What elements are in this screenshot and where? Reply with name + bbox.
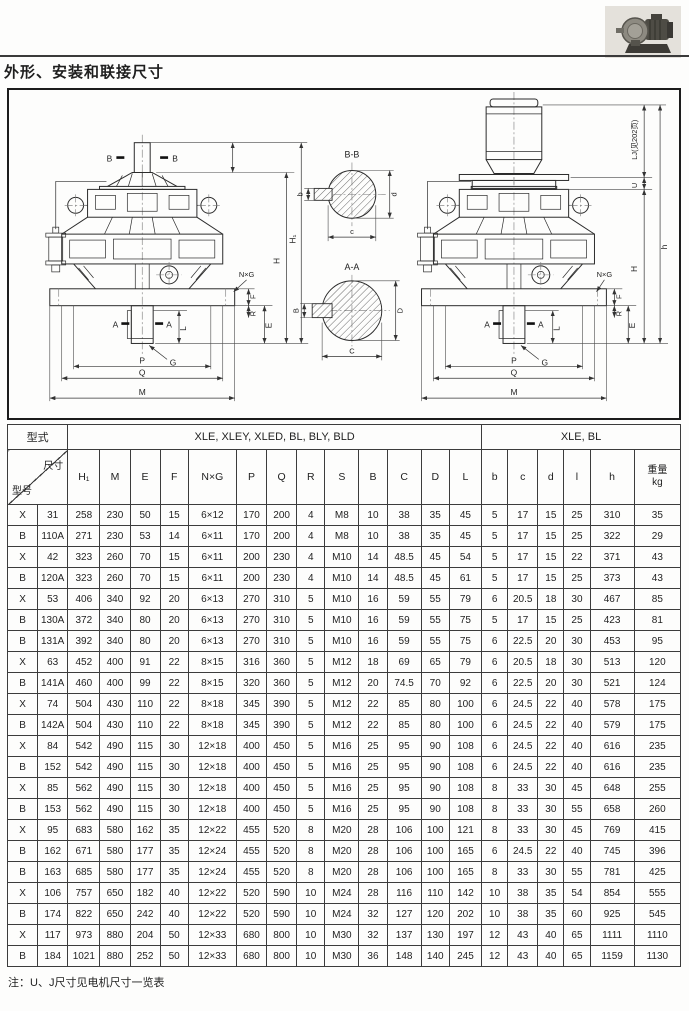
table-cell: 59: [387, 631, 421, 652]
table-header-row: 尺寸 型号 H₁ M E F N×G P Q R S B C D L b c d…: [8, 450, 681, 505]
table-cell: M20: [325, 841, 359, 862]
table-cell: X: [8, 589, 38, 610]
table-cell: 6×11: [188, 568, 236, 589]
table-cell: 235: [634, 757, 680, 778]
table-cell: 110A: [38, 526, 68, 547]
table-cell: 24.5: [508, 757, 538, 778]
table-cell: 4: [297, 505, 325, 526]
table-cell: 520: [236, 883, 266, 904]
table-cell: 6: [482, 631, 508, 652]
table-cell: 14: [359, 547, 387, 568]
table-cell: 74: [38, 694, 68, 715]
table-cell: 22: [538, 841, 564, 862]
table-cell: X: [8, 652, 38, 673]
table-cell: 769: [590, 820, 634, 841]
table-cell: 12×24: [188, 841, 236, 862]
table-cell: 95: [387, 757, 421, 778]
table-cell: 8×15: [188, 673, 236, 694]
table-cell: 95: [387, 778, 421, 799]
table-cell: B: [8, 715, 38, 736]
weight-unit: kg: [635, 477, 680, 490]
table-cell: M10: [325, 589, 359, 610]
product-photo-gearmotor: [605, 6, 681, 58]
table-cell: 650: [100, 904, 130, 925]
table-cell: 504: [68, 715, 100, 736]
table-cell: 79: [449, 589, 481, 610]
table-cell: 15: [538, 568, 564, 589]
table-cell: 8×18: [188, 715, 236, 736]
table-cell: 230: [267, 547, 297, 568]
table-cell: 24.5: [508, 715, 538, 736]
table-cell: 6×13: [188, 610, 236, 631]
table-cell: 400: [100, 673, 130, 694]
table-cell: 467: [590, 589, 634, 610]
table-cell: 165: [449, 841, 481, 862]
col-d: d: [538, 450, 564, 505]
table-cell: 204: [130, 925, 160, 946]
table-cell: 22: [538, 715, 564, 736]
table-cell: 6×11: [188, 547, 236, 568]
table-cell: 450: [267, 799, 297, 820]
table-cell: 50: [160, 946, 188, 967]
table-cell: 197: [449, 925, 481, 946]
table-cell: 310: [267, 631, 297, 652]
table-cell: 562: [68, 799, 100, 820]
table-group-row: 型式 XLE, XLEY, XLED, BL, BLY, BLD XLE, BL: [8, 425, 681, 450]
table-cell: 5: [482, 505, 508, 526]
table-cell: 15: [160, 547, 188, 568]
table-cell: 658: [590, 799, 634, 820]
table-cell: 20: [160, 631, 188, 652]
table-cell: 170: [236, 526, 266, 547]
dim-U: U: [630, 183, 639, 188]
table-cell: 32: [359, 904, 387, 925]
table-cell: 53: [38, 589, 68, 610]
table-cell: 55: [564, 862, 590, 883]
table-cell: 14: [160, 526, 188, 547]
table-row: B130A37234080206×132703105M1016595575517…: [8, 610, 681, 631]
table-cell: 120: [634, 652, 680, 673]
table-cell: 30: [538, 820, 564, 841]
table-cell: 854: [590, 883, 634, 904]
table-cell: 45: [421, 568, 449, 589]
type-header: 型式: [8, 425, 68, 450]
table-cell: 30: [160, 799, 188, 820]
table-cell: 106: [387, 862, 421, 883]
table-cell: 45: [564, 820, 590, 841]
table-cell: 162: [38, 841, 68, 862]
table-cell: 616: [590, 757, 634, 778]
footnote: 注：U、J尺寸见电机尺寸一览表: [8, 974, 164, 990]
table-cell: 22: [564, 547, 590, 568]
group-header-xle-series: XLE, XLEY, XLED, BL, BLY, BLD: [68, 425, 482, 450]
table-cell: 371: [590, 547, 634, 568]
table-cell: 200: [236, 547, 266, 568]
table-cell: 108: [449, 799, 481, 820]
table-cell: 10: [297, 925, 325, 946]
table-cell: 140: [421, 946, 449, 967]
table-cell: 55: [421, 631, 449, 652]
table-cell: 1021: [68, 946, 100, 967]
table-cell: 137: [387, 925, 421, 946]
table-cell: 22: [160, 715, 188, 736]
table-cell: 90: [421, 778, 449, 799]
table-cell: 12×33: [188, 946, 236, 967]
table-cell: 450: [267, 736, 297, 757]
table-cell: 108: [449, 736, 481, 757]
table-cell: 258: [68, 505, 100, 526]
table-cell: 4: [297, 526, 325, 547]
table-cell: 42: [38, 547, 68, 568]
table-cell: 33: [508, 778, 538, 799]
table-cell: 230: [100, 505, 130, 526]
table-cell: 520: [267, 820, 297, 841]
table-cell: 5: [297, 631, 325, 652]
table-cell: X: [8, 694, 38, 715]
table-cell: 520: [236, 904, 266, 925]
table-cell: 35: [538, 904, 564, 925]
col-R: R: [297, 450, 325, 505]
section-bb-title: B-B: [344, 150, 359, 160]
table-cell: 100: [449, 694, 481, 715]
catalog-page: 外形、安装和联接尺寸: [0, 0, 689, 1011]
table-cell: 90: [421, 757, 449, 778]
table-cell: 115: [130, 799, 160, 820]
table-cell: 17: [508, 505, 538, 526]
table-cell: M20: [325, 862, 359, 883]
dim-H-right: H: [629, 266, 639, 272]
table-cell: 12×18: [188, 799, 236, 820]
table-cell: 5: [482, 610, 508, 631]
table-cell: 30: [538, 778, 564, 799]
dim-h-total: h: [659, 244, 669, 249]
table-cell: 31: [38, 505, 68, 526]
dim-R: R: [249, 310, 258, 316]
table-cell: 400: [236, 778, 266, 799]
col-C: C: [387, 450, 421, 505]
table-cell: 17: [508, 568, 538, 589]
table-cell: 8: [482, 778, 508, 799]
table-cell: 12: [482, 946, 508, 967]
table-cell: 616: [590, 736, 634, 757]
table-cell: 10: [482, 904, 508, 925]
table-cell: 555: [634, 883, 680, 904]
table-cell: 45: [421, 547, 449, 568]
output-shaft-photo: [616, 28, 624, 33]
table-cell: 880: [100, 946, 130, 967]
table-cell: 33: [508, 820, 538, 841]
table-cell: B: [8, 568, 38, 589]
table-cell: M16: [325, 736, 359, 757]
col-l: l: [564, 450, 590, 505]
table-cell: 25: [359, 778, 387, 799]
col-weight: 重量 kg: [634, 450, 680, 505]
table-cell: 80: [130, 631, 160, 652]
table-cell: B: [8, 946, 38, 967]
table-cell: 48.5: [387, 547, 421, 568]
table-cell: 6: [482, 694, 508, 715]
table-cell: 92: [449, 673, 481, 694]
table-cell: 177: [130, 862, 160, 883]
table-cell: 115: [130, 778, 160, 799]
table-cell: 84: [38, 736, 68, 757]
table-cell: 65: [564, 946, 590, 967]
table-cell: 8: [297, 820, 325, 841]
col-b: b: [482, 450, 508, 505]
table-cell: 81: [634, 610, 680, 631]
table-cell: 230: [100, 526, 130, 547]
table-cell: 85: [387, 715, 421, 736]
table-row: B141A46040099228×153203605M122074.570926…: [8, 673, 681, 694]
table-cell: 10: [359, 505, 387, 526]
table-cell: 55: [421, 589, 449, 610]
diagonal-header-cell: 尺寸 型号: [8, 450, 68, 505]
table-cell: 24.5: [508, 841, 538, 862]
table-cell: 90: [421, 736, 449, 757]
table-cell: 12×22: [188, 883, 236, 904]
table-cell: 20.5: [508, 589, 538, 610]
table-cell: 36: [359, 946, 387, 967]
table-cell: B: [8, 673, 38, 694]
table-cell: 745: [590, 841, 634, 862]
table-cell: 53: [130, 526, 160, 547]
table-cell: 800: [267, 946, 297, 967]
table-cell: 18: [359, 652, 387, 673]
table-cell: 12×18: [188, 736, 236, 757]
table-row: B142A504430110228×183453905M122285801006…: [8, 715, 681, 736]
table-cell: 25: [359, 757, 387, 778]
table-body: X3125823050156×121702004M810383545517152…: [8, 505, 681, 967]
table-cell: 110: [130, 715, 160, 736]
table-cell: 100: [421, 820, 449, 841]
table-cell: 10: [297, 883, 325, 904]
table-cell: B: [8, 799, 38, 820]
table-cell: 95: [38, 820, 68, 841]
table-cell: 65: [421, 652, 449, 673]
table-cell: 25: [359, 799, 387, 820]
table-cell: 28: [359, 883, 387, 904]
table-cell: 260: [100, 568, 130, 589]
section-a-mark-left-r: A: [484, 320, 490, 330]
table-cell: 400: [236, 799, 266, 820]
table-cell: 162: [130, 820, 160, 841]
table-cell: 1159: [590, 946, 634, 967]
table-cell: 92: [130, 589, 160, 610]
table-cell: 542: [68, 736, 100, 757]
table-cell: 373: [590, 568, 634, 589]
page-title: 外形、安装和联接尺寸: [4, 61, 164, 82]
table-cell: 396: [634, 841, 680, 862]
table-cell: 490: [100, 799, 130, 820]
table-cell: 148: [387, 946, 421, 967]
col-h: h: [590, 450, 634, 505]
table-cell: 35: [160, 820, 188, 841]
table-cell: 22: [160, 652, 188, 673]
table-cell: 40: [160, 904, 188, 925]
table-cell: 43: [634, 547, 680, 568]
table-cell: 80: [421, 715, 449, 736]
table-cell: M24: [325, 904, 359, 925]
right-outline-drawing: LJ(见202页) U H h F R E N×G A A: [418, 92, 669, 401]
table-cell: 5: [297, 652, 325, 673]
table-cell: 106: [387, 820, 421, 841]
table-cell: 70: [421, 673, 449, 694]
table-cell: 38: [508, 904, 538, 925]
table-cell: 130: [421, 925, 449, 946]
dim-H: H: [271, 258, 281, 264]
table-cell: 5: [482, 526, 508, 547]
table-cell: B: [8, 862, 38, 883]
table-cell: 5: [297, 778, 325, 799]
table-cell: M10: [325, 631, 359, 652]
table-cell: 59: [387, 610, 421, 631]
table-cell: 12: [482, 925, 508, 946]
table-cell: 177: [130, 841, 160, 862]
table-cell: M8: [325, 526, 359, 547]
table-cell: 142: [449, 883, 481, 904]
table-cell: 100: [421, 862, 449, 883]
table-cell: 430: [100, 694, 130, 715]
dim-R-right: R: [614, 310, 623, 316]
table-cell: 450: [267, 778, 297, 799]
table-cell: 79: [449, 652, 481, 673]
table-cell: 22: [359, 694, 387, 715]
table-cell: 127: [387, 904, 421, 925]
table-cell: 1111: [590, 925, 634, 946]
table-cell: 5: [297, 589, 325, 610]
table-cell: 270: [236, 589, 266, 610]
table-cell: 28: [359, 820, 387, 841]
col-c: c: [508, 450, 538, 505]
table-cell: B: [8, 610, 38, 631]
table-row: X1067576501824012×2252059010M24281161101…: [8, 883, 681, 904]
table-cell: 40: [564, 757, 590, 778]
table-cell: 200: [267, 505, 297, 526]
table-cell: 20: [538, 631, 564, 652]
table-cell: 55: [564, 799, 590, 820]
table-cell: 5: [297, 694, 325, 715]
table-cell: 310: [267, 589, 297, 610]
table-row: B1748226502424012×2252059010M24321271202…: [8, 904, 681, 925]
table-cell: M12: [325, 694, 359, 715]
table-cell: 16: [359, 631, 387, 652]
table-cell: X: [8, 505, 38, 526]
table-cell: 170: [236, 505, 266, 526]
table-cell: 360: [267, 673, 297, 694]
table-cell: 580: [100, 841, 130, 862]
dim-LJ: LJ(见202页): [630, 119, 639, 160]
table-cell: 12×33: [188, 925, 236, 946]
table-cell: 5: [297, 673, 325, 694]
table-cell: 4: [297, 547, 325, 568]
table-cell: 452: [68, 652, 100, 673]
table-cell: 200: [236, 568, 266, 589]
table-cell: 5: [297, 799, 325, 820]
col-D: D: [421, 450, 449, 505]
dim-H1: H₁: [287, 234, 297, 243]
table-cell: 460: [68, 673, 100, 694]
table-cell: 43: [634, 568, 680, 589]
dim-NxG-right: N×G: [597, 270, 613, 279]
table-cell: 24.5: [508, 736, 538, 757]
table-cell: X: [8, 820, 38, 841]
table-cell: 25: [359, 736, 387, 757]
table-cell: 6: [482, 589, 508, 610]
table-row: X74504430110228×183453905M12228580100624…: [8, 694, 681, 715]
table-cell: 504: [68, 694, 100, 715]
table-cell: 30: [160, 757, 188, 778]
table-cell: 372: [68, 610, 100, 631]
table-cell: 22: [538, 736, 564, 757]
col-F: F: [160, 450, 188, 505]
table-cell: 12×18: [188, 757, 236, 778]
table-cell: 230: [267, 568, 297, 589]
table-cell: 22: [160, 673, 188, 694]
dim-E-right: E: [627, 322, 637, 328]
table-cell: 29: [634, 526, 680, 547]
table-cell: 685: [68, 862, 100, 883]
table-cell: B: [8, 526, 38, 547]
table-cell: 520: [267, 841, 297, 862]
table-cell: 130A: [38, 610, 68, 631]
table-cell: 322: [590, 526, 634, 547]
table-cell: 120: [421, 904, 449, 925]
table-cell: 390: [267, 694, 297, 715]
table-cell: 59: [387, 589, 421, 610]
table-cell: 106: [38, 883, 68, 904]
table-cell: 35: [160, 862, 188, 883]
table-cell: 74.5: [387, 673, 421, 694]
table-row: B18410218802525012×3368080010M3036148140…: [8, 946, 681, 967]
table-cell: 95: [387, 736, 421, 757]
table-cell: 38: [387, 505, 421, 526]
dim-G-right: G: [541, 357, 548, 367]
dim-E: E: [263, 322, 273, 328]
table-cell: 345: [236, 715, 266, 736]
table-cell: M12: [325, 673, 359, 694]
table-cell: 131A: [38, 631, 68, 652]
table-cell: 360: [267, 652, 297, 673]
table-cell: 323: [68, 547, 100, 568]
table-cell: 63: [38, 652, 68, 673]
table-cell: M8: [325, 505, 359, 526]
table-cell: 54: [449, 547, 481, 568]
dimension-table: 型式 XLE, XLEY, XLED, BL, BLY, BLD XLE, BL…: [7, 424, 681, 967]
table-cell: M12: [325, 715, 359, 736]
table-cell: 116: [387, 883, 421, 904]
col-H1: H₁: [68, 450, 100, 505]
table-cell: 15: [538, 505, 564, 526]
table-cell: 55: [421, 610, 449, 631]
table-cell: 242: [130, 904, 160, 925]
table-cell: 513: [590, 652, 634, 673]
table-cell: 108: [449, 778, 481, 799]
table-cell: 8: [297, 862, 325, 883]
table-row: X5340634092206×132703105M1016595579620.5…: [8, 589, 681, 610]
table-row: B1535624901153012×184004505M162595901088…: [8, 799, 681, 820]
table-cell: 30: [564, 652, 590, 673]
col-L: L: [449, 450, 481, 505]
table-cell: 323: [68, 568, 100, 589]
table-cell: 100: [421, 841, 449, 862]
table-cell: 490: [100, 757, 130, 778]
table-cell: 45: [449, 526, 481, 547]
table-cell: 61: [449, 568, 481, 589]
table-cell: 1130: [634, 946, 680, 967]
table-cell: 671: [68, 841, 100, 862]
table-row: X855624901153012×184004505M1625959010883…: [8, 778, 681, 799]
table-cell: 110: [130, 694, 160, 715]
